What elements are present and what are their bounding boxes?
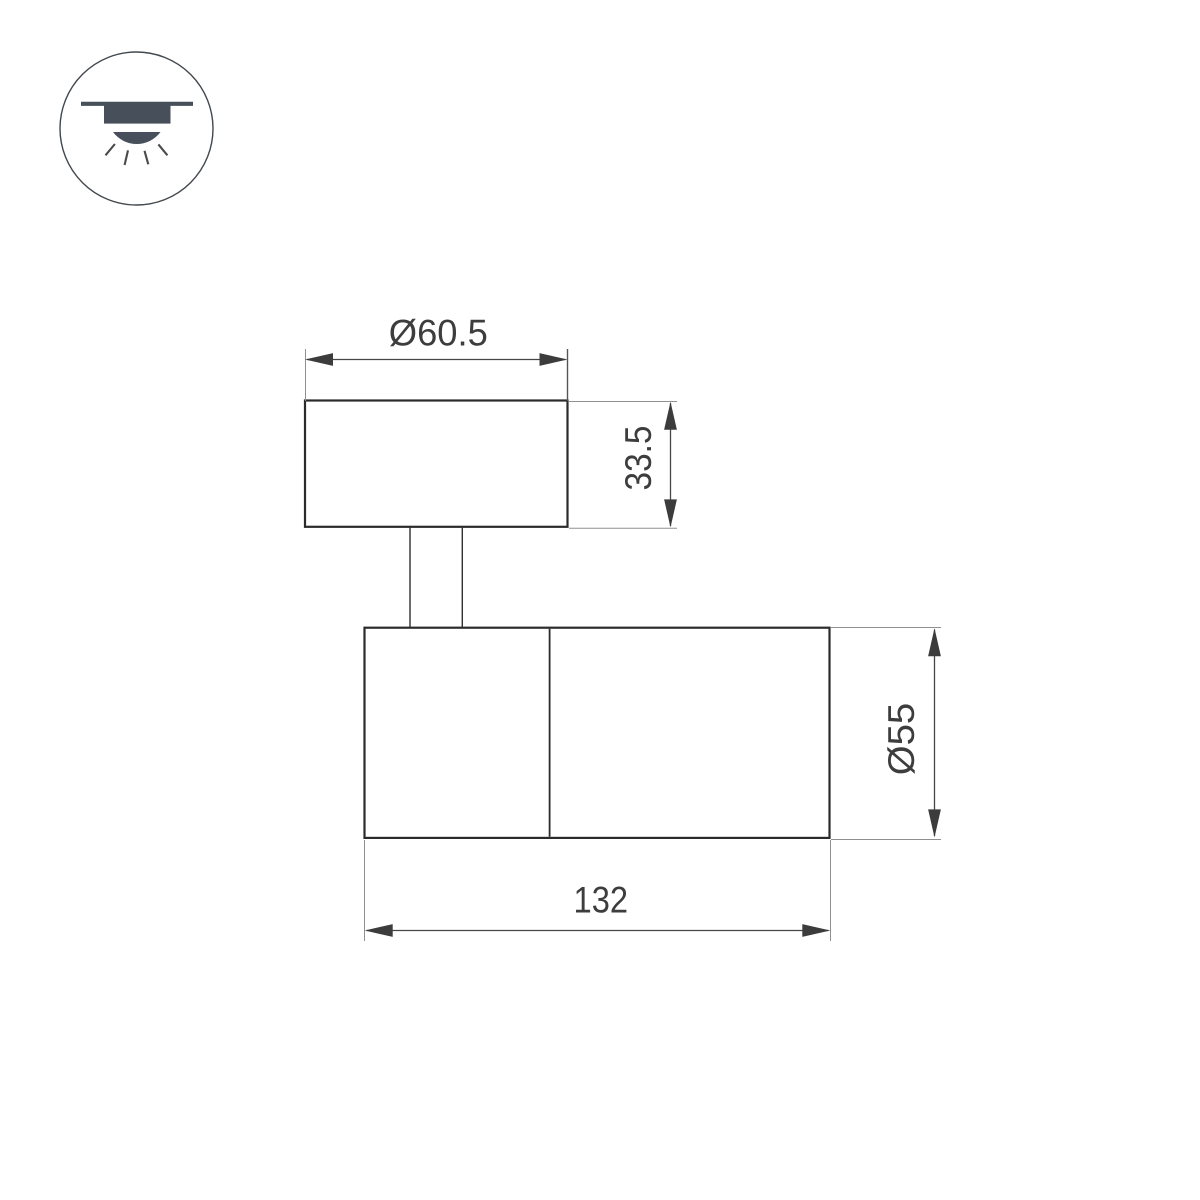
svg-text:Ø55: Ø55 (881, 703, 922, 776)
svg-text:Ø60.5: Ø60.5 (389, 313, 488, 354)
svg-text:132: 132 (574, 880, 629, 921)
svg-text:33.5: 33.5 (618, 426, 659, 491)
